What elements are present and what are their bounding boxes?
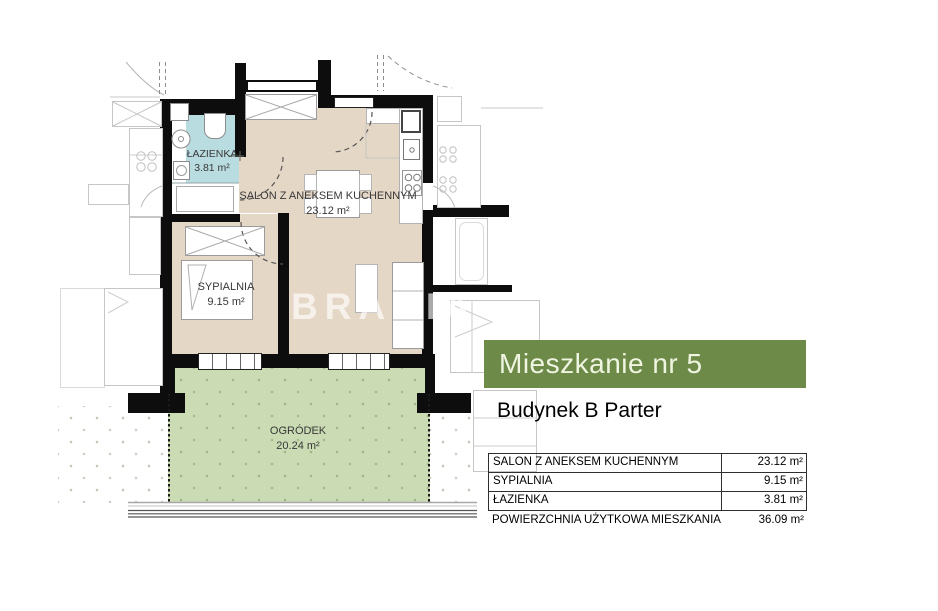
neighbor-bed: [104, 288, 163, 386]
toilet: [204, 113, 226, 139]
table-row-label: SYPIALNIA: [489, 473, 721, 491]
kitchen-sink: [403, 139, 420, 160]
table-row-value: 3.81 m²: [721, 492, 806, 510]
table-row-value: 23.12 m²: [721, 454, 806, 472]
neighbor-counter: [129, 128, 163, 217]
wall-segment: [172, 214, 240, 222]
neighbor-room: [60, 288, 105, 388]
neighbor-counter: [437, 125, 481, 208]
room-label-bathroom: ŁAZIENKA 3.81 m²: [187, 147, 238, 175]
table-row: SALON Z ANEKSEM KUCHENNYM 23.12 m²: [488, 453, 807, 472]
wall-segment: [260, 354, 328, 368]
exterior-arc: [126, 62, 164, 95]
wall-segment: [425, 354, 435, 398]
table-row-total: POWIERZCHNIA UŻYTKOWA MIESZKANIA 36.09 m…: [488, 511, 807, 530]
table-row: ŁAZIENKA 3.81 m²: [488, 491, 807, 511]
terrace-door: [198, 353, 262, 370]
neighbor-wardrobe: [112, 101, 162, 127]
watermark: BRACIA: [291, 286, 477, 328]
room-label-garden: OGRÓDEK 20.24 m²: [270, 424, 326, 454]
room-area: 23.12 m²: [306, 205, 349, 217]
listing-floorplan-page: ŁAZIENKA 3.81 m² SALON Z ANEKSEM KUCHENN…: [0, 0, 938, 611]
sidewalk-lines: [128, 503, 477, 518]
table-row-label: ŁAZIENKA: [489, 492, 721, 510]
table-row-label: POWIERZCHNIA UŻYTKOWA MIESZKANIA: [488, 511, 723, 530]
entry-window: [248, 82, 316, 90]
wall-segment: [278, 213, 289, 357]
bathtub-nook: [176, 186, 234, 212]
fridge: [401, 110, 421, 133]
terrace-door: [328, 353, 390, 370]
entry-wardrobe: [245, 94, 317, 120]
wall-segment: [128, 393, 185, 413]
table-row-value: 36.09 m²: [723, 511, 807, 530]
room-label-salon: SALON Z ANEKSEM KUCHENNYM 23.12 m²: [239, 189, 416, 219]
neighbor-bathtub-inner: [459, 222, 484, 281]
neighbor-door-gap: [422, 183, 433, 210]
room-label-bedroom: SYPIALNIA 9.15 m²: [198, 280, 255, 310]
room-area: 20.24 m²: [276, 440, 319, 452]
neighbor-garden-right: [430, 406, 478, 503]
area-table: SALON Z ANEKSEM KUCHENNYM 23.12 m² SYPIA…: [488, 453, 807, 530]
wall-niche: [170, 103, 189, 121]
floor-plan: ŁAZIENKA 3.81 m² SALON Z ANEKSEM KUCHENN…: [0, 0, 560, 560]
room-area: 9.15 m²: [207, 296, 244, 308]
exterior-arc: [388, 56, 452, 88]
room-area: 3.81 m²: [194, 162, 230, 174]
bedroom-wardrobe: [185, 226, 265, 256]
neighbor-cabinet: [129, 217, 161, 275]
wall-segment: [422, 95, 433, 183]
table-row-value: 9.15 m²: [721, 473, 806, 491]
building-subtitle: Budynek B Parter: [497, 399, 662, 423]
top-window: [334, 97, 374, 108]
neighbor-door: [88, 184, 129, 205]
table-row-label: SALON Z ANEKSEM KUCHENNYM: [489, 454, 721, 472]
neighbor-cabinet: [437, 96, 462, 122]
apartment-title-banner: Mieszkanie nr 5: [484, 340, 806, 388]
apartment-title: Mieszkanie nr 5: [499, 348, 703, 380]
table-row: SYPIALNIA 9.15 m²: [488, 472, 807, 491]
neighbor-garden-left: [58, 406, 168, 503]
